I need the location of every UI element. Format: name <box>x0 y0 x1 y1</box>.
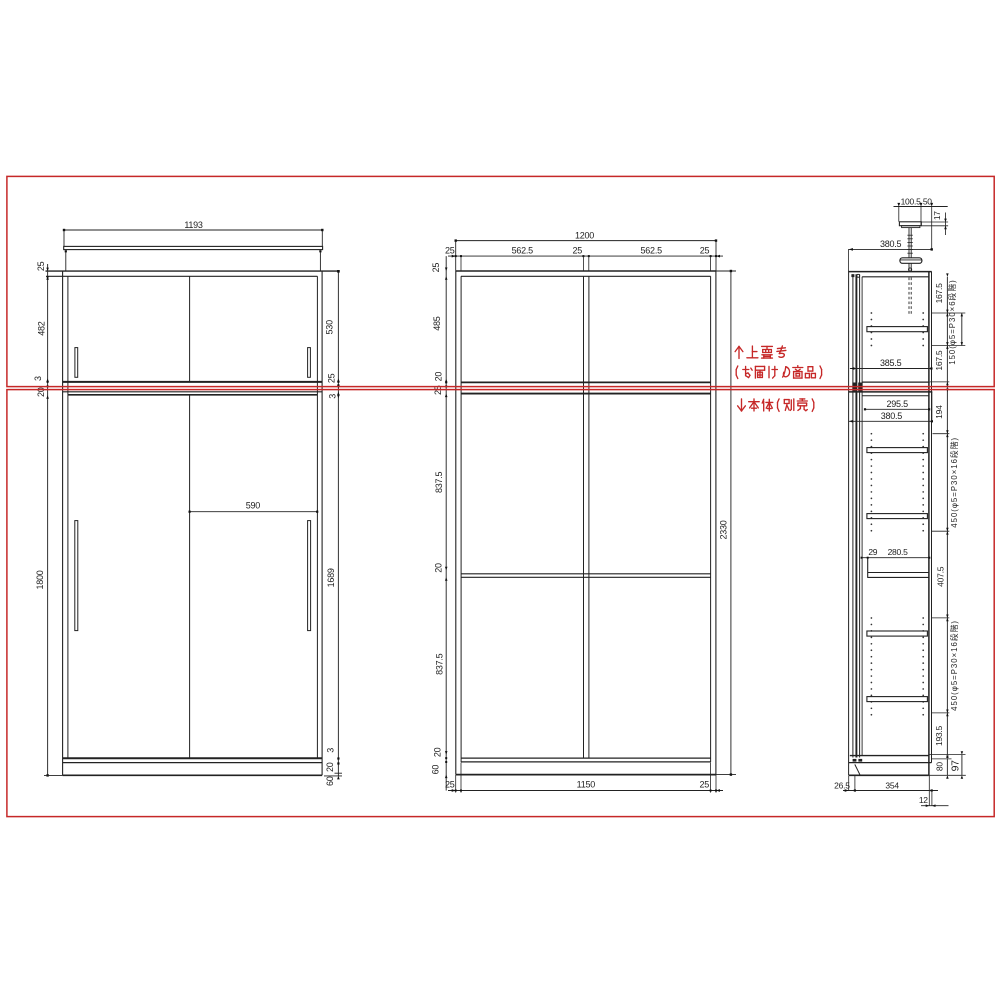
svg-text:295.5: 295.5 <box>887 399 909 409</box>
svg-text:1200: 1200 <box>575 231 594 241</box>
svg-text:380.5: 380.5 <box>880 239 902 249</box>
svg-text:150(φ5=P30×6段階): 150(φ5=P30×6段階) <box>947 279 957 365</box>
svg-text:450(φ5=P30×16段階): 450(φ5=P30×16段階) <box>949 620 959 711</box>
svg-text:97: 97 <box>950 760 962 772</box>
svg-text:25: 25 <box>445 245 455 255</box>
svg-text:25: 25 <box>36 261 46 271</box>
svg-text:20: 20 <box>433 747 443 757</box>
svg-text:25: 25 <box>700 245 710 255</box>
svg-text:25: 25 <box>445 780 455 790</box>
svg-text:20: 20 <box>325 762 335 772</box>
svg-text:20: 20 <box>36 387 46 397</box>
svg-text:530: 530 <box>325 320 335 335</box>
svg-text:100.5: 100.5 <box>901 196 922 206</box>
svg-text:562.5: 562.5 <box>641 245 663 255</box>
svg-text:17: 17 <box>932 211 942 220</box>
svg-text:837.5: 837.5 <box>434 472 444 494</box>
svg-text:25: 25 <box>699 780 709 790</box>
svg-text:3: 3 <box>33 376 43 381</box>
svg-text:20: 20 <box>434 372 444 382</box>
svg-text:1689: 1689 <box>326 568 336 587</box>
svg-text:407.5: 407.5 <box>935 566 945 587</box>
svg-text:193.5: 193.5 <box>934 725 944 746</box>
svg-text:450(φ5=P30×16段階): 450(φ5=P30×16段階) <box>949 437 959 528</box>
svg-text:25: 25 <box>431 263 441 273</box>
svg-text:29: 29 <box>868 547 877 557</box>
svg-text:562.5: 562.5 <box>512 245 534 255</box>
svg-text:80: 80 <box>935 762 945 771</box>
svg-text:1800: 1800 <box>35 570 45 589</box>
svg-text:385.5: 385.5 <box>880 358 902 368</box>
svg-text:167.5: 167.5 <box>934 350 944 371</box>
svg-text:280.5: 280.5 <box>888 547 909 557</box>
svg-text:1150: 1150 <box>577 780 596 790</box>
svg-text:60: 60 <box>431 765 441 775</box>
svg-text:25: 25 <box>572 245 582 255</box>
svg-text:485: 485 <box>432 316 442 331</box>
svg-text:590: 590 <box>246 501 261 511</box>
svg-text:3: 3 <box>326 748 336 753</box>
svg-text:1193: 1193 <box>184 220 203 230</box>
svg-text:354: 354 <box>885 780 899 790</box>
svg-text:194: 194 <box>934 405 944 419</box>
svg-text:380.5: 380.5 <box>881 411 903 421</box>
svg-text:482: 482 <box>36 321 46 336</box>
svg-text:837.5: 837.5 <box>434 653 444 675</box>
svg-text:2330: 2330 <box>719 520 729 539</box>
svg-text:3: 3 <box>327 394 337 399</box>
svg-text:20: 20 <box>434 563 444 573</box>
svg-text:60: 60 <box>325 776 335 786</box>
svg-text:12: 12 <box>919 795 928 805</box>
svg-text:50: 50 <box>923 196 932 206</box>
svg-text:26.5: 26.5 <box>834 780 850 790</box>
svg-text:25: 25 <box>327 373 337 383</box>
svg-text:167.5: 167.5 <box>934 283 944 304</box>
